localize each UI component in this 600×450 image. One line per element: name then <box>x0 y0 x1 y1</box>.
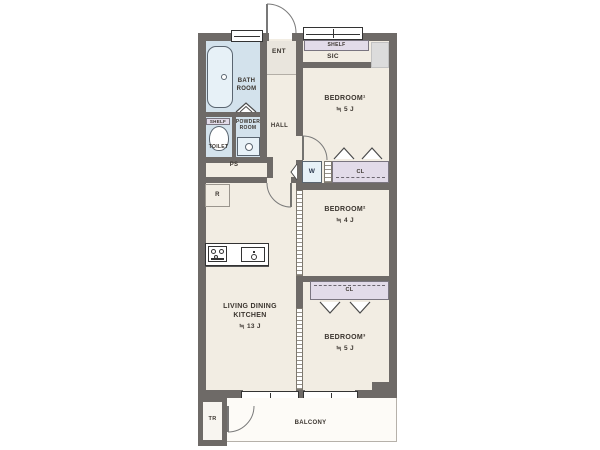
bedroom3-label: BEDROOM³ ≒ 5 J <box>301 334 389 353</box>
floor-plan: SHELF SHELF TOILET R W CL <box>0 0 600 450</box>
kitchen-counter-icon <box>205 243 269 266</box>
trunk-room-label: TR <box>203 416 222 423</box>
entrance-label: ENT <box>262 48 296 56</box>
washing-machine-space: W <box>302 161 322 183</box>
entrance-door-arc <box>267 4 296 33</box>
window-bedroom1-icon <box>303 27 363 40</box>
toilet-label: TOILET <box>204 144 233 150</box>
sic-label: SIC <box>303 53 363 61</box>
wall-ps-bottom <box>198 177 267 183</box>
refrigerator-space: R <box>205 184 230 207</box>
bedroom2-label: BEDROOM² ≒ 4 J <box>301 206 389 225</box>
powder-room-label: POWDER ROOM <box>234 119 262 132</box>
balcony-label: BALCONY <box>224 420 397 428</box>
closet-2-label: CL <box>346 287 354 294</box>
bedroom1-area: ≒ 5 J <box>301 106 389 114</box>
wall-left <box>198 33 206 398</box>
linen-strip <box>324 161 332 183</box>
meter-box <box>371 42 389 68</box>
closet-1-label: CL <box>357 169 365 176</box>
bathroom-label: BATH ROOM <box>233 78 260 93</box>
wall-mid-upper <box>296 39 303 136</box>
bedroom1-label: BEDROOM¹ ≒ 5 J <box>301 95 389 114</box>
toilet-shelf: SHELF <box>206 118 230 125</box>
entrance-step-line <box>263 74 296 75</box>
pipe-space-label: PS <box>204 162 264 170</box>
stove-icon <box>208 246 227 262</box>
bedroom2-sliding-door <box>296 190 303 276</box>
bathtub-icon <box>207 46 233 108</box>
sink-icon <box>241 247 265 262</box>
wall-closet1-bottom <box>296 183 397 190</box>
ldk-label: LIVING DINING KITCHEN ≒ 13 J <box>202 303 298 331</box>
sic-shelf-label: SHELF <box>328 42 346 48</box>
refrigerator-label: R <box>215 192 220 200</box>
closet-2: CL <box>310 281 389 300</box>
wall-right <box>389 33 397 408</box>
window-entry-icon <box>231 30 263 42</box>
bedroom3-area: ≒ 5 J <box>301 345 389 353</box>
sic-shelf: SHELF <box>304 40 369 51</box>
wall-ps-right <box>267 157 273 178</box>
powder-sink-icon <box>237 137 260 156</box>
closet-1: CL <box>332 161 389 183</box>
toilet-shelf-label: SHELF <box>210 119 226 125</box>
bedroom2-area: ≒ 4 J <box>301 217 389 225</box>
ldk-area: ≒ 13 J <box>202 323 298 331</box>
washer-label: W <box>309 168 315 176</box>
counter-lip <box>205 266 269 267</box>
hall-label: HALL <box>263 123 296 131</box>
wall-wet-divider <box>260 41 267 163</box>
entrance-floor <box>262 41 296 74</box>
